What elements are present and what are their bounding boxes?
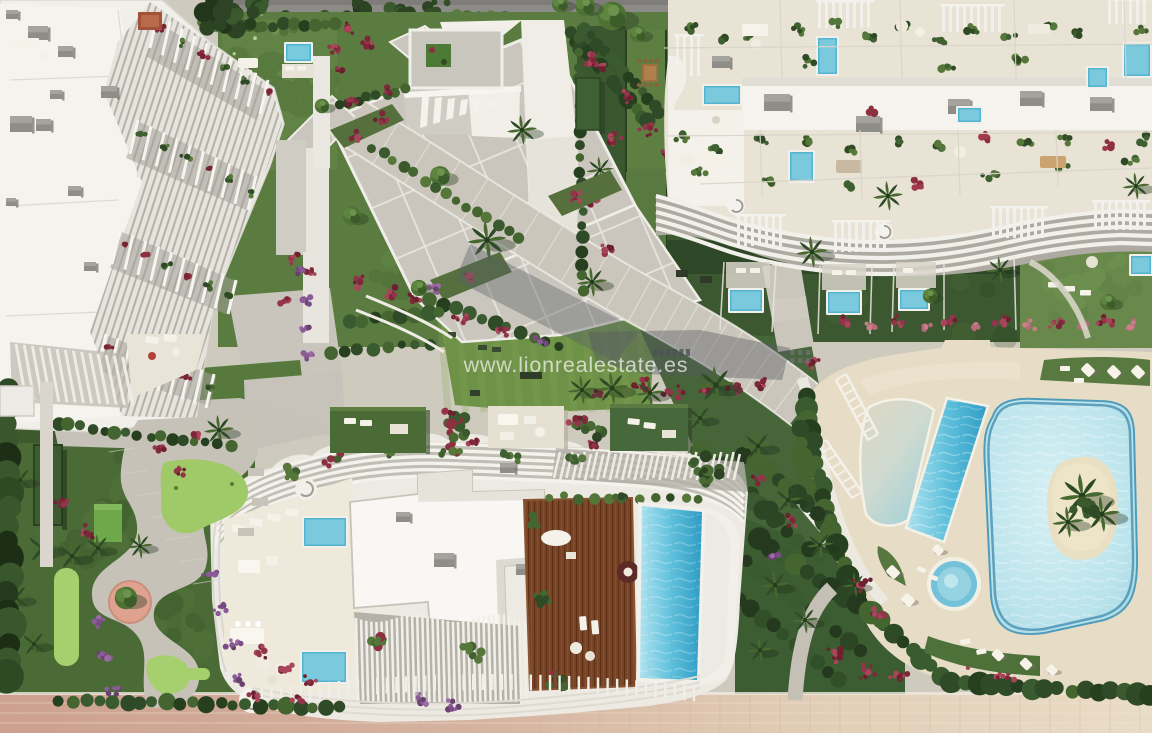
svg-text:www.lionrealestate.es: www.lionrealestate.es: [463, 353, 689, 377]
